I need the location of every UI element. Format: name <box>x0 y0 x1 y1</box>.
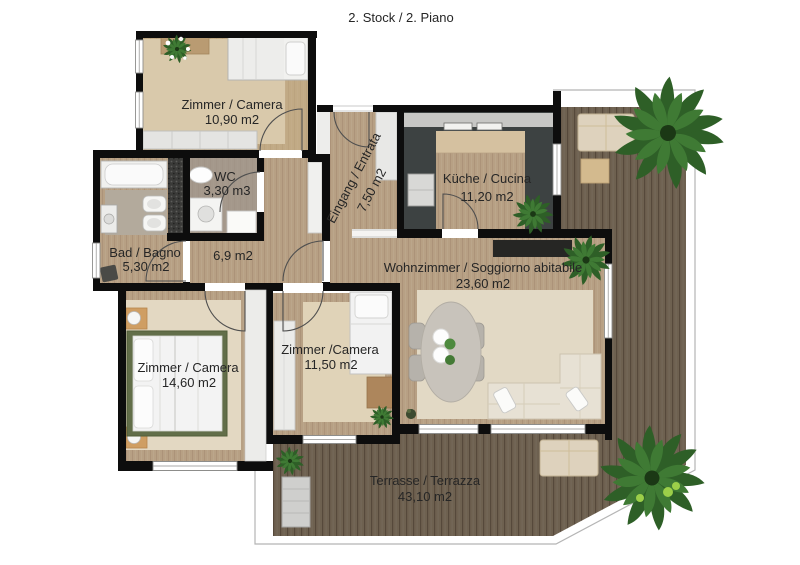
svg-text:23,60 m2: 23,60 m2 <box>456 276 510 291</box>
svg-text:Küche / Cucina: Küche / Cucina <box>443 171 532 186</box>
svg-text:5,30 m2: 5,30 m2 <box>123 259 170 274</box>
svg-text:6,9 m2: 6,9 m2 <box>213 248 253 263</box>
svg-text:11,20 m2: 11,20 m2 <box>460 189 513 204</box>
svg-text:2. Stock / 2. Piano: 2. Stock / 2. Piano <box>348 10 454 25</box>
svg-text:Terrasse / Terrazza: Terrasse / Terrazza <box>370 473 481 488</box>
svg-text:Wohnzimmer / Soggiorno abitabi: Wohnzimmer / Soggiorno abitabile <box>384 260 582 275</box>
svg-text:Zimmer /Camera: Zimmer /Camera <box>281 342 379 357</box>
svg-text:Bad / Bagno: Bad / Bagno <box>109 245 181 260</box>
svg-text:11,50 m2: 11,50 m2 <box>304 357 357 372</box>
svg-text:WC: WC <box>214 169 236 184</box>
svg-text:43,10 m2: 43,10 m2 <box>398 489 452 504</box>
svg-text:14,60 m2: 14,60 m2 <box>162 375 216 390</box>
svg-text:Zimmer / Camera: Zimmer / Camera <box>137 360 239 375</box>
svg-text:Zimmer / Camera: Zimmer / Camera <box>181 97 283 112</box>
svg-text:3,30 m3: 3,30 m3 <box>204 183 251 198</box>
svg-text:10,90 m2: 10,90 m2 <box>205 112 259 127</box>
